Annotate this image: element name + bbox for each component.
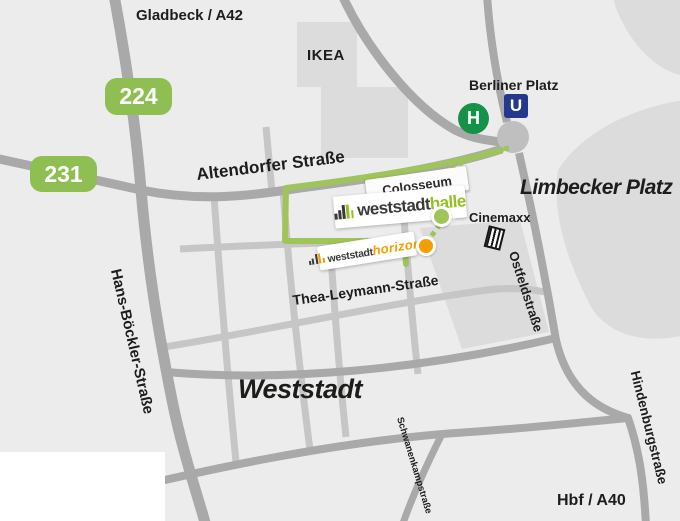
tram-stop-icon: H	[458, 103, 489, 134]
route-badge-224: 224	[105, 78, 172, 115]
weststadt-label: Weststadt	[238, 374, 362, 405]
route-badge-231: 231	[30, 156, 97, 192]
hbf-a40-label: Hbf / A40	[557, 492, 626, 510]
weststadthalle-bars-icon	[334, 204, 354, 220]
city-map: Gladbeck / A42 IKEA Berliner Platz Alten…	[0, 0, 680, 521]
limbecker-mall-building	[556, 100, 680, 339]
weststadthorizont-name-part1: weststadt	[327, 246, 374, 265]
weststadthorizont-bars-icon	[308, 253, 325, 265]
weststadthorizont-marker	[416, 236, 436, 256]
cinemaxx-label: Cinemaxx	[469, 210, 530, 225]
weststadthalle-name-part1: weststadt	[356, 194, 430, 220]
ikea-building	[297, 22, 408, 158]
weststadthalle-marker	[431, 206, 452, 227]
berliner-platz-label: Berliner Platz	[469, 77, 558, 93]
ubahn-station-icon: U	[504, 94, 528, 118]
map-legend	[0, 452, 165, 521]
gladbeck-label: Gladbeck / A42	[136, 7, 243, 24]
corner-building	[612, 0, 680, 76]
limbecker-platz-label: Limbecker Platz	[520, 176, 672, 200]
ikea-label: IKEA	[307, 47, 345, 64]
